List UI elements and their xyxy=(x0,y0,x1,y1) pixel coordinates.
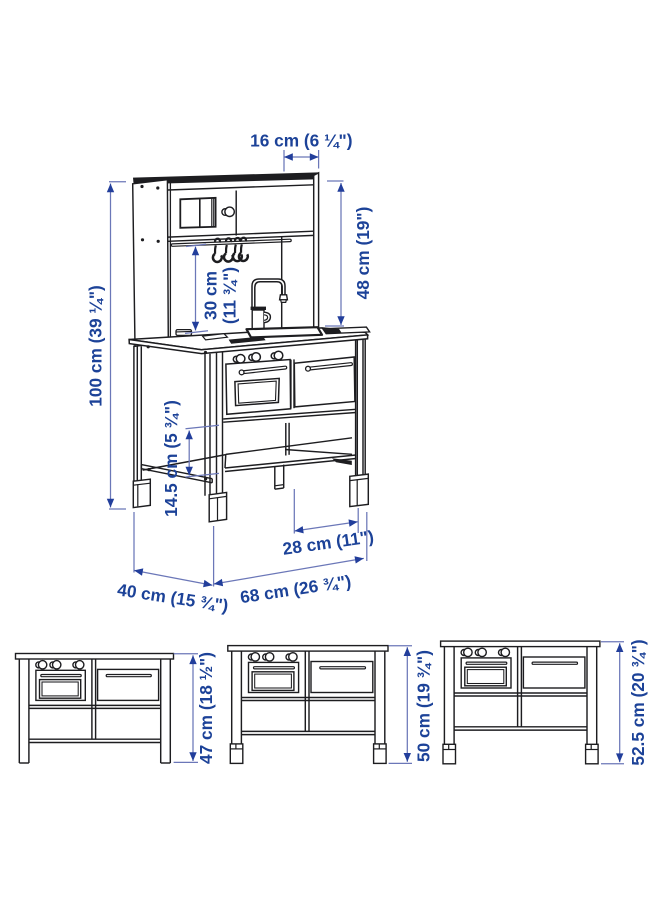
svg-text:14.5 cm (5 ¾"): 14.5 cm (5 ¾") xyxy=(161,400,181,517)
svg-text:52.5 cm (20 ¾"): 52.5 cm (20 ¾") xyxy=(628,639,648,765)
svg-text:100 cm (39 ¼"): 100 cm (39 ¼") xyxy=(86,285,106,407)
svg-text:30 cm: 30 cm xyxy=(201,271,221,320)
svg-text:50 cm (19 ¾"): 50 cm (19 ¾") xyxy=(413,650,433,762)
svg-text:48 cm (19"): 48 cm (19") xyxy=(353,207,373,300)
svg-text:16 cm (6 ¼"): 16 cm (6 ¼") xyxy=(250,131,352,151)
svg-text:40 cm (15 ¾"): 40 cm (15 ¾") xyxy=(116,579,230,615)
svg-text:(11 ¾"): (11 ¾") xyxy=(220,267,240,324)
svg-text:47 cm (18 ½"): 47 cm (18 ½") xyxy=(196,652,216,764)
